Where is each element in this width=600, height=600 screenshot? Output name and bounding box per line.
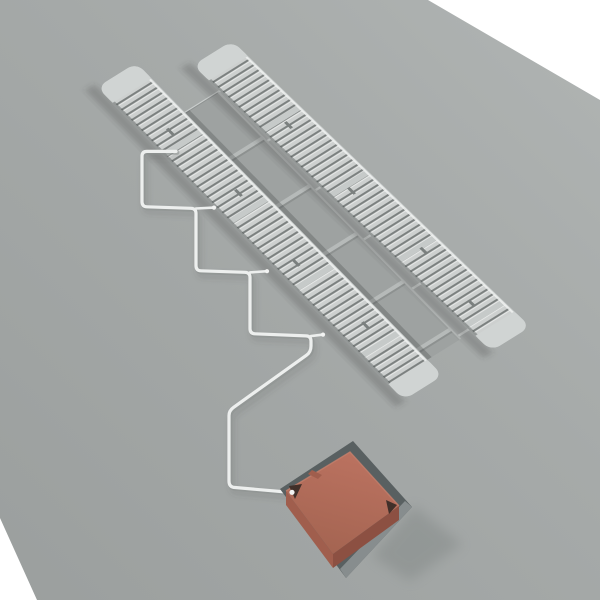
pipe-tip-connector xyxy=(289,490,294,495)
scene-3d-illustration xyxy=(0,0,600,600)
render-stage xyxy=(0,0,600,600)
